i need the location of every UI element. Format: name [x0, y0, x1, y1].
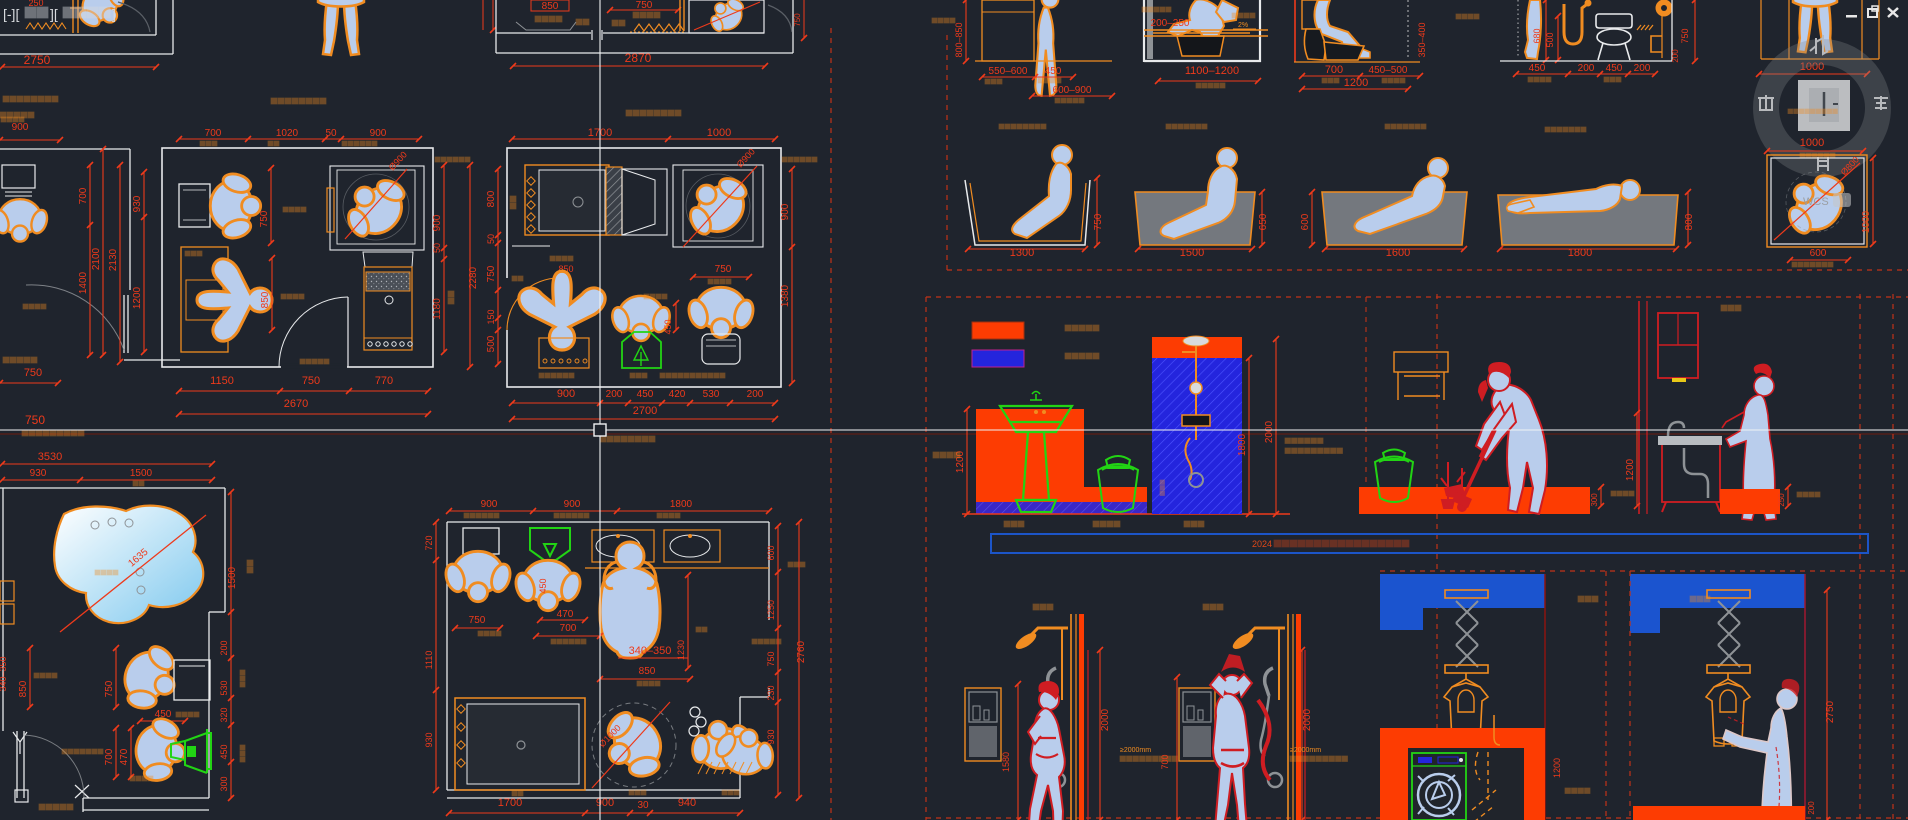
svg-text:1800: 1800 [1237, 433, 1248, 456]
svg-text:2000: 2000 [1100, 708, 1111, 731]
svg-text:300: 300 [1590, 493, 1599, 507]
svg-text:750: 750 [302, 375, 320, 387]
svg-text:2750: 2750 [24, 53, 51, 67]
svg-text:600–900: 600–900 [1053, 85, 1092, 96]
svg-text:2130: 2130 [108, 248, 119, 271]
svg-text:750: 750 [25, 413, 45, 427]
svg-text:750: 750 [486, 265, 497, 282]
svg-text:930: 930 [30, 468, 47, 479]
svg-text:450: 450 [1606, 63, 1623, 74]
svg-text:700: 700 [205, 128, 222, 139]
svg-text:3530: 3530 [38, 451, 62, 463]
svg-text:700: 700 [560, 623, 577, 634]
svg-text:[-][: [-][ [3, 6, 19, 22]
svg-text:450: 450 [663, 319, 673, 334]
svg-text:470: 470 [119, 748, 130, 765]
svg-text:1500: 1500 [227, 566, 238, 589]
svg-text:1380: 1380 [780, 284, 791, 307]
svg-text:530: 530 [219, 680, 229, 695]
svg-text:1110: 1110 [424, 651, 434, 670]
svg-text:1800: 1800 [670, 499, 693, 510]
svg-text:700: 700 [78, 187, 89, 204]
svg-text:700: 700 [1160, 754, 1170, 769]
svg-text:720: 720 [424, 535, 434, 550]
svg-text:450: 450 [1045, 66, 1062, 77]
svg-text:200: 200 [1578, 63, 1595, 74]
svg-text:1180: 1180 [432, 298, 443, 320]
svg-text:700: 700 [1325, 64, 1343, 76]
svg-text:1000: 1000 [1861, 210, 1872, 233]
svg-text:750: 750 [104, 680, 115, 697]
svg-text:1200: 1200 [1625, 458, 1636, 481]
svg-text:930: 930 [424, 732, 434, 747]
svg-text:1580: 1580 [1001, 752, 1011, 772]
svg-text:][: ][ [50, 6, 58, 22]
svg-text:2000: 2000 [1264, 420, 1275, 443]
svg-text:850: 850 [542, 1, 559, 12]
svg-text:300: 300 [219, 776, 229, 791]
svg-text:900: 900 [370, 128, 387, 139]
svg-text:200: 200 [747, 389, 764, 400]
svg-text:800: 800 [486, 190, 497, 207]
svg-text:2024: 2024 [1252, 539, 1272, 549]
svg-text:800: 800 [1684, 213, 1695, 230]
svg-text:750: 750 [469, 615, 486, 626]
svg-text:550–600: 550–600 [989, 66, 1028, 77]
svg-text:200: 200 [1807, 801, 1816, 815]
svg-text:1200: 1200 [132, 286, 143, 309]
svg-text:530: 530 [703, 389, 720, 400]
svg-text:1000: 1000 [707, 127, 731, 139]
svg-text:350–400: 350–400 [1417, 22, 1427, 57]
svg-text:]: ] [112, 6, 116, 22]
svg-text:2760: 2760 [796, 640, 807, 663]
svg-text:200: 200 [219, 640, 229, 655]
svg-text:600: 600 [1300, 213, 1311, 230]
svg-text:WCS: WCS [1803, 196, 1829, 208]
svg-text:750: 750 [793, 13, 802, 27]
svg-text:750: 750 [766, 651, 776, 666]
svg-text:1500: 1500 [130, 468, 153, 479]
svg-text:680: 680 [1532, 28, 1542, 43]
svg-text:850: 850 [18, 680, 29, 697]
svg-text:1250: 1250 [766, 600, 776, 620]
svg-text:900: 900 [12, 122, 29, 133]
svg-text:770: 770 [375, 375, 393, 387]
svg-text:500: 500 [486, 335, 497, 352]
svg-text:600: 600 [766, 545, 776, 560]
svg-text:700: 700 [104, 748, 115, 765]
svg-text:150: 150 [486, 309, 496, 324]
svg-text:1100–1200: 1100–1200 [1185, 65, 1239, 77]
svg-text:200: 200 [1634, 63, 1651, 74]
svg-text:340–350: 340–350 [0, 656, 8, 691]
svg-text:900: 900 [780, 203, 791, 220]
svg-text:900: 900 [432, 214, 443, 231]
svg-text:470: 470 [557, 609, 574, 620]
svg-text:1000: 1000 [1800, 137, 1824, 149]
svg-text:250: 250 [1777, 493, 1786, 507]
svg-text:450: 450 [219, 744, 229, 759]
svg-text:750: 750 [715, 264, 732, 275]
svg-text:750: 750 [259, 210, 270, 227]
svg-text:900: 900 [564, 499, 581, 510]
svg-text:2700: 2700 [633, 405, 657, 417]
svg-text:≥2000mm: ≥2000mm [1290, 747, 1321, 754]
svg-text:930: 930 [766, 729, 776, 744]
svg-text:2280: 2280 [468, 266, 479, 289]
svg-text:200–250: 200–250 [1151, 18, 1190, 29]
svg-text:900: 900 [481, 499, 498, 510]
svg-text:50: 50 [486, 234, 496, 244]
svg-text:750: 750 [1680, 28, 1690, 43]
svg-text:1700: 1700 [498, 797, 522, 809]
svg-text:1400: 1400 [78, 271, 89, 294]
svg-text:800–850: 800–850 [954, 22, 964, 57]
svg-text:450: 450 [637, 389, 654, 400]
svg-text:230: 230 [766, 685, 776, 700]
svg-text:≥2000mm: ≥2000mm [1120, 747, 1151, 754]
svg-text:1020: 1020 [276, 128, 299, 139]
svg-text:450–500: 450–500 [1369, 65, 1408, 76]
svg-text:750: 750 [636, 0, 653, 11]
svg-text:200: 200 [1671, 49, 1680, 63]
svg-text:600: 600 [1810, 248, 1827, 259]
svg-text:750: 750 [24, 367, 42, 379]
svg-text:340–350: 340–350 [629, 645, 672, 657]
svg-text:1150: 1150 [210, 375, 234, 387]
svg-text:2000: 2000 [1302, 708, 1313, 731]
svg-text:320: 320 [219, 707, 229, 722]
svg-text:450: 450 [538, 578, 548, 593]
svg-text:30: 30 [637, 800, 649, 811]
svg-text:750: 750 [1093, 213, 1104, 230]
svg-text:900: 900 [557, 388, 575, 400]
svg-text:2870: 2870 [625, 51, 652, 65]
svg-text:1200: 1200 [1552, 758, 1562, 778]
svg-text:2670: 2670 [284, 398, 308, 410]
svg-text:1200: 1200 [1344, 77, 1368, 89]
svg-text:930: 930 [132, 195, 143, 212]
svg-text:450: 450 [1529, 63, 1546, 74]
svg-text:2100: 2100 [91, 247, 102, 270]
svg-text:200: 200 [606, 389, 623, 400]
svg-text:850: 850 [639, 666, 656, 677]
svg-text:940: 940 [678, 797, 696, 809]
svg-text:1230: 1230 [676, 640, 686, 660]
svg-text:2750: 2750 [1825, 700, 1836, 723]
svg-text:900: 900 [596, 797, 614, 809]
svg-text:500: 500 [1545, 32, 1555, 47]
svg-text:50: 50 [432, 243, 442, 253]
svg-text:850: 850 [260, 291, 271, 308]
svg-text:650: 650 [1258, 213, 1269, 230]
svg-text:420: 420 [669, 389, 686, 400]
svg-text:2%: 2% [1238, 22, 1248, 29]
